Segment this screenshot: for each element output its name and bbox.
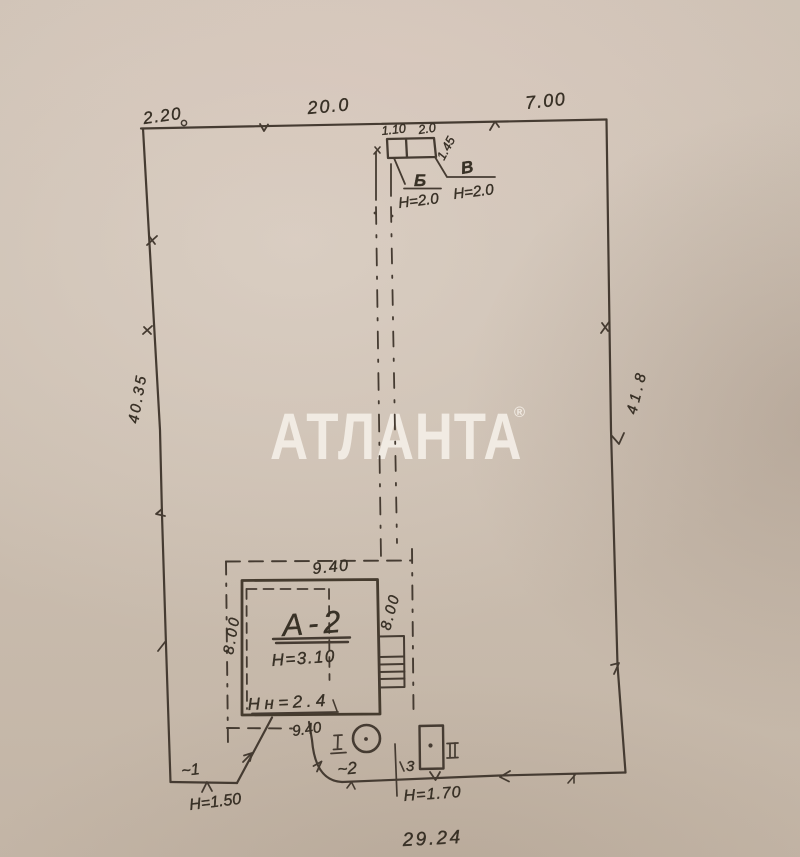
svg-text:~1: ~1: [181, 761, 201, 780]
svg-text:41.8: 41.8: [623, 368, 650, 416]
svg-text:В: В: [459, 157, 474, 178]
svg-text:Н=1.50: Н=1.50: [188, 791, 242, 814]
svg-text:29.24: 29.24: [401, 827, 463, 851]
svg-text:8.00: 8.00: [377, 592, 403, 632]
svg-text:8.00: 8.00: [220, 614, 244, 656]
svg-text:40.35: 40.35: [125, 372, 150, 424]
svg-text:2.20: 2.20: [141, 104, 183, 128]
svg-text:Б: Б: [414, 171, 426, 190]
svg-text:9.40: 9.40: [312, 557, 351, 578]
svg-text:2.0: 2.0: [416, 121, 436, 137]
svg-text:Н=2.0: Н=2.0: [397, 190, 440, 212]
svg-text:20.0: 20.0: [306, 94, 352, 118]
svg-text:Н=2.0: Н=2.0: [452, 181, 495, 203]
svg-text:1.10: 1.10: [381, 122, 407, 138]
svg-text:9.40: 9.40: [291, 719, 323, 740]
svg-text:Н=1.70: Н=1.70: [403, 784, 462, 805]
svg-text:~2: ~2: [337, 758, 359, 779]
svg-text:7.00: 7.00: [524, 89, 567, 113]
svg-text:3: 3: [406, 758, 415, 775]
svg-text:1.45: 1.45: [434, 134, 458, 162]
svg-text:Н=3.10: Н=3.10: [271, 647, 336, 670]
svg-text:®: ®: [514, 404, 525, 421]
svg-text:Нн=2.4: Нн=2.4: [247, 691, 330, 714]
